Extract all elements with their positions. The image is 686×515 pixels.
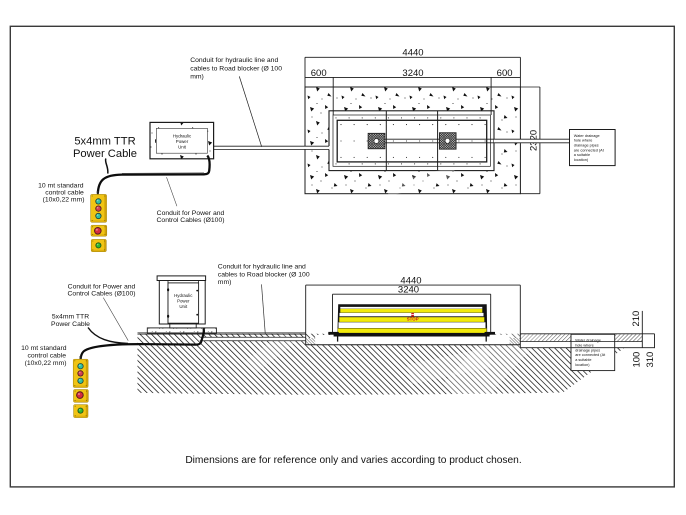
svg-text:are connected (At: are connected (At — [575, 353, 606, 357]
svg-text:Power: Power — [176, 139, 189, 144]
svg-text:100: 100 — [632, 352, 643, 368]
svg-text:hole where: hole where — [574, 139, 593, 143]
svg-text:10 mt standard: 10 mt standard — [38, 183, 84, 190]
svg-text:control cable: control cable — [45, 190, 84, 197]
svg-text:cables to Road blocker (Ø 100: cables to Road blocker (Ø 100 — [190, 65, 282, 72]
svg-text:location): location) — [575, 363, 590, 367]
svg-text:(10x0,22 mm): (10x0,22 mm) — [43, 197, 85, 204]
svg-text:Conduit for Power and: Conduit for Power and — [157, 210, 225, 217]
svg-text:5x4mm TTR: 5x4mm TTR — [74, 136, 135, 148]
svg-text:Conduit for hydraulic line and: Conduit for hydraulic line and — [218, 263, 306, 270]
svg-text:location): location) — [574, 158, 589, 162]
svg-text:210: 210 — [631, 311, 642, 327]
svg-text:3240: 3240 — [402, 68, 423, 79]
svg-text:Dimensions are for reference o: Dimensions are for reference only and va… — [185, 455, 521, 466]
svg-text:600: 600 — [497, 68, 513, 79]
svg-text:Water drainage: Water drainage — [575, 339, 601, 343]
svg-text:Conduit for hydraulic line and: Conduit for hydraulic line and — [190, 57, 278, 64]
svg-text:Hydraulic: Hydraulic — [173, 134, 192, 139]
svg-text:3240: 3240 — [398, 285, 419, 296]
svg-text:hole where: hole where — [575, 343, 594, 347]
svg-text:mm): mm) — [218, 279, 232, 286]
svg-text:Conduit for Power and: Conduit for Power and — [68, 283, 136, 290]
svg-text:10 mt standard: 10 mt standard — [21, 345, 67, 352]
svg-text:600: 600 — [311, 68, 327, 79]
svg-text:Water drainage: Water drainage — [574, 134, 600, 138]
svg-text:a suitable: a suitable — [574, 153, 590, 157]
svg-text:5x4mm TTR: 5x4mm TTR — [52, 314, 89, 321]
svg-text:Unit: Unit — [179, 304, 188, 309]
svg-text:control cable: control cable — [27, 352, 66, 359]
svg-text:Power: Power — [177, 298, 190, 303]
svg-text:a suitable: a suitable — [575, 358, 591, 362]
svg-text:are connected (At: are connected (At — [574, 148, 605, 152]
svg-text:drainage pipes: drainage pipes — [574, 144, 599, 148]
svg-text:Control Cables (Ø100): Control Cables (Ø100) — [157, 217, 225, 224]
svg-text:310: 310 — [645, 352, 656, 368]
svg-text:Power Cable: Power Cable — [73, 148, 137, 160]
svg-text:mm): mm) — [190, 74, 204, 81]
svg-text:4440: 4440 — [402, 48, 423, 59]
svg-text:drainage pipes: drainage pipes — [575, 348, 600, 352]
svg-text:Unit: Unit — [178, 144, 187, 149]
svg-text:cables to Road blocker (Ø 100: cables to Road blocker (Ø 100 — [218, 272, 310, 279]
svg-text:Power Cable: Power Cable — [51, 321, 90, 328]
svg-text:(10x0,22 mm): (10x0,22 mm) — [25, 360, 67, 367]
svg-text:Hydraulic: Hydraulic — [174, 293, 193, 298]
svg-text:Control Cables (Ø100): Control Cables (Ø100) — [68, 290, 136, 297]
svg-text:STOP: STOP — [407, 316, 419, 321]
